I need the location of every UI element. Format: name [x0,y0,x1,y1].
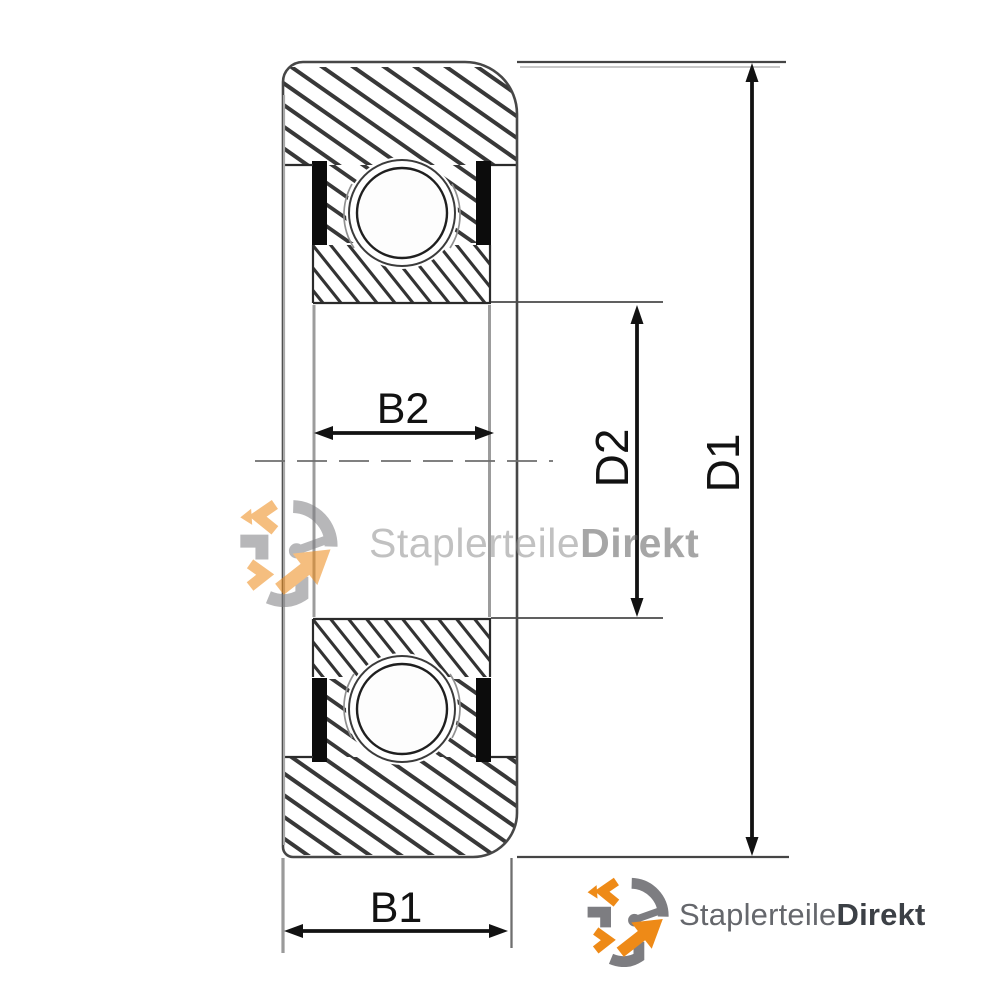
footer-logo-text: StaplerteileDirekt [679,899,926,930]
footer-brand-bold: Direkt [837,897,926,932]
watermark-text: StaplerteileDirekt [369,523,699,564]
bearing-drawing-canvas: B2 B1 D2 D1 [0,0,1000,1000]
watermark-brand-regular: Staplerteile [369,520,580,566]
watermark: StaplerteileDirekt [0,0,1000,1000]
footer-brand-regular: Staplerteile [679,897,837,932]
watermark-brand-bold: Direkt [580,520,699,566]
staplerteiledirekt-logo-icon [236,499,344,607]
staplerteiledirekt-logo-icon [584,877,674,967]
